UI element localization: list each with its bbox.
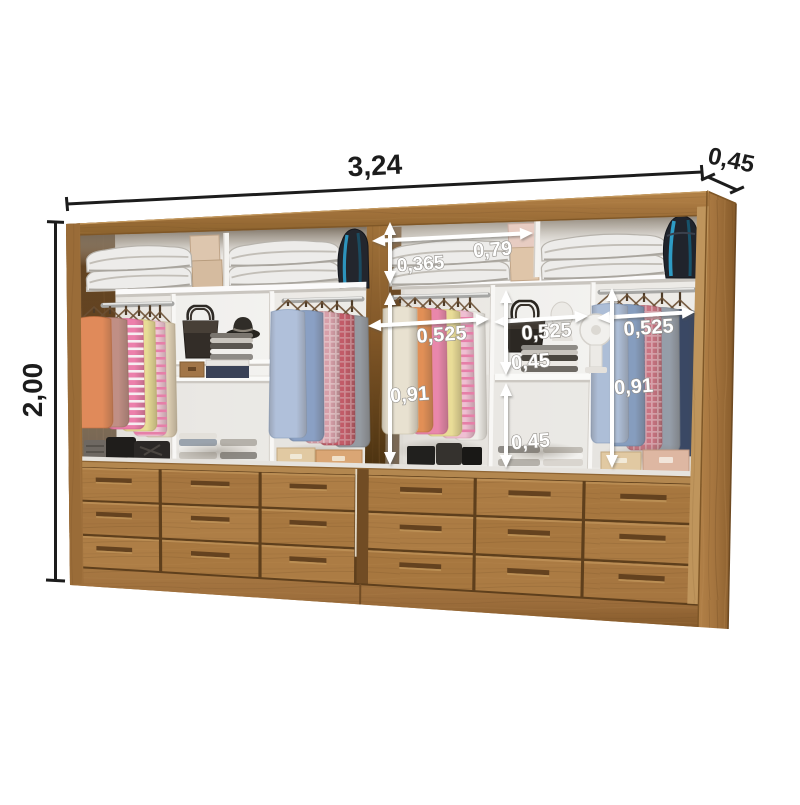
svg-text:3,24: 3,24 [347, 149, 403, 183]
svg-text:0,45: 0,45 [510, 350, 550, 375]
svg-text:0,525: 0,525 [416, 322, 467, 347]
svg-text:0,91: 0,91 [389, 383, 429, 408]
svg-text:0,79: 0,79 [472, 238, 512, 263]
svg-text:0,365: 0,365 [396, 252, 445, 276]
svg-text:0,525: 0,525 [623, 315, 674, 340]
svg-text:0,45: 0,45 [510, 430, 550, 455]
svg-text:2,00: 2,00 [17, 363, 48, 418]
svg-text:0,91: 0,91 [613, 375, 653, 400]
svg-text:0,525: 0,525 [521, 319, 572, 344]
